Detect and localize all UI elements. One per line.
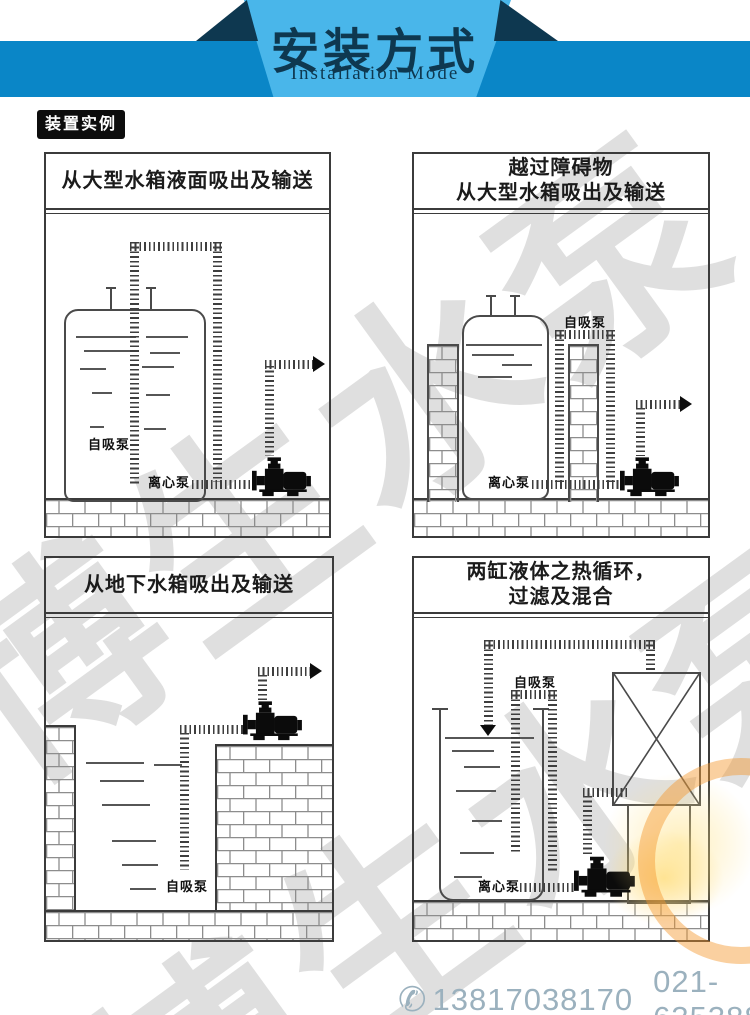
water-line — [472, 354, 514, 356]
diagram-3-title-line1: 从地下水箱吸出及输送 — [84, 573, 294, 598]
water-line — [456, 790, 496, 792]
pump-silhouette — [252, 454, 314, 500]
circulation-pipe-top — [484, 640, 655, 649]
pump-suction-pipe — [192, 480, 254, 489]
flow-arrow — [313, 356, 325, 372]
diagram-box-1: 从大型水箱液面吸出及输送 自吸泵 离心泵 — [44, 152, 331, 538]
divider — [46, 612, 332, 614]
water-line — [150, 352, 180, 354]
flow-arrow — [680, 396, 692, 412]
tank-wall-cap — [432, 708, 448, 710]
diagram-box-3: 从地下水箱吸出及输送 自吸泵 — [44, 556, 334, 942]
discharge-pipe-horizontal — [258, 667, 310, 676]
brick-ground — [414, 498, 708, 536]
pump-silhouette — [243, 698, 305, 744]
divider — [414, 612, 708, 614]
suction-pipe-down — [606, 330, 615, 482]
label-self-priming-pump: 自吸泵 — [166, 876, 208, 895]
pump-suction-pipe — [520, 883, 574, 892]
suction-pipe-vertical — [180, 733, 189, 870]
pump-silhouette — [620, 454, 682, 500]
brick-pillar-obstacle — [568, 344, 599, 502]
diagram-1-title-line1: 从大型水箱液面吸出及输送 — [62, 169, 314, 194]
water-line — [146, 336, 188, 338]
water-line — [90, 426, 104, 428]
diagram-1-title: 从大型水箱液面吸出及输送 — [46, 154, 329, 208]
diagram-4-title: 两缸液体之热循环， 过滤及混合 — [414, 558, 708, 612]
brick-pillar-left — [427, 344, 459, 502]
diagram-2-title: 越过障碍物 从大型水箱吸出及输送 — [414, 154, 708, 208]
tank-nozzle — [490, 297, 492, 317]
tank-nozzle-cap — [106, 287, 116, 289]
water-line — [466, 344, 542, 346]
phone-icon: ✆ — [398, 983, 427, 1015]
water-line — [76, 336, 136, 338]
phone-number-landline: 021-63538833 — [653, 964, 750, 1015]
divider — [46, 617, 332, 618]
pump-suction-pipe — [532, 480, 620, 489]
label-self-priming-pump: 自吸泵 — [88, 434, 130, 453]
tank-nozzle — [150, 289, 152, 311]
water-line — [460, 852, 494, 854]
water-line — [478, 376, 512, 378]
water-line — [130, 888, 156, 890]
tank-nozzle — [110, 289, 112, 311]
water-line — [502, 364, 532, 366]
label-self-priming-pump: 自吸泵 — [564, 312, 606, 331]
water-line — [122, 864, 158, 866]
phone-number-mobile: 13817038170 — [433, 982, 634, 1015]
tank-nozzle — [514, 297, 516, 317]
discharge-pipe-vertical — [636, 408, 645, 456]
diagram-4-title-line2: 过滤及混合 — [509, 585, 614, 610]
divider — [46, 208, 329, 210]
water-line — [464, 766, 500, 768]
circulation-pipe-right-drop — [646, 640, 655, 672]
suction-pipe-up — [555, 330, 564, 482]
divider — [46, 213, 329, 214]
water-line — [80, 368, 106, 370]
water-line — [445, 737, 534, 739]
label-centrifugal-pump: 离心泵 — [478, 876, 520, 895]
label-self-priming-pump: 自吸泵 — [514, 672, 556, 691]
brick-wall-left — [46, 725, 76, 912]
tank-nozzle-cap — [510, 295, 520, 297]
divider — [414, 208, 708, 210]
water-line — [154, 764, 182, 766]
water-line — [452, 750, 494, 752]
transfer-pipe-right — [548, 690, 557, 873]
suction-pipe-horizontal — [180, 725, 245, 734]
tank-wall-cap — [533, 708, 549, 710]
transfer-pipe-left — [511, 690, 520, 852]
water-line — [472, 820, 502, 822]
discharge-pipe-horizontal — [265, 360, 313, 369]
diagram-3-title: 从地下水箱吸出及输送 — [46, 558, 332, 612]
water-line — [144, 428, 166, 430]
water-line — [112, 840, 156, 842]
discharge-pipe-horizontal — [636, 400, 680, 409]
suction-pipe-vertical — [130, 242, 139, 486]
divider — [414, 617, 708, 618]
diagram-2-title-line2: 从大型水箱吸出及输送 — [456, 181, 666, 206]
page: 博生水泵 博生水泵 安装方式 Installation Mode 装置实例 从大… — [0, 0, 750, 1015]
water-line — [92, 392, 112, 394]
water-line — [100, 780, 144, 782]
divider — [414, 213, 708, 214]
brick-ground — [46, 498, 329, 536]
section-label: 装置实例 — [37, 110, 125, 139]
diagram-4-title-line1: 两缸液体之热循环， — [467, 560, 656, 585]
water-line — [84, 350, 134, 352]
suction-pipe-down — [213, 242, 222, 482]
brick-pit-floor — [46, 910, 332, 940]
flow-arrow — [310, 663, 322, 679]
page-subtitle: Installation Mode — [0, 63, 750, 85]
brick-wall-right — [215, 744, 332, 912]
diagram-box-2: 越过障碍物 从大型水箱吸出及输送 自吸泵 离心泵 — [412, 152, 710, 538]
discharge-pipe-vertical — [583, 796, 592, 854]
suction-pipe-top — [130, 242, 222, 251]
water-line — [146, 394, 170, 396]
label-centrifugal-pump: 离心泵 — [148, 472, 190, 491]
tank-nozzle-cap — [146, 287, 156, 289]
diagram-2-title-line1: 越过障碍物 — [509, 156, 614, 181]
water-line — [86, 762, 144, 764]
discharge-pipe-vertical — [265, 366, 274, 456]
tank-nozzle-cap — [486, 295, 496, 297]
label-centrifugal-pump: 离心泵 — [488, 472, 530, 491]
water-line — [142, 366, 174, 368]
footer-contact: ✆ 13817038170 021-63538833 — [398, 964, 750, 1015]
discharge-pipe-vertical — [258, 675, 267, 701]
water-line — [102, 804, 150, 806]
